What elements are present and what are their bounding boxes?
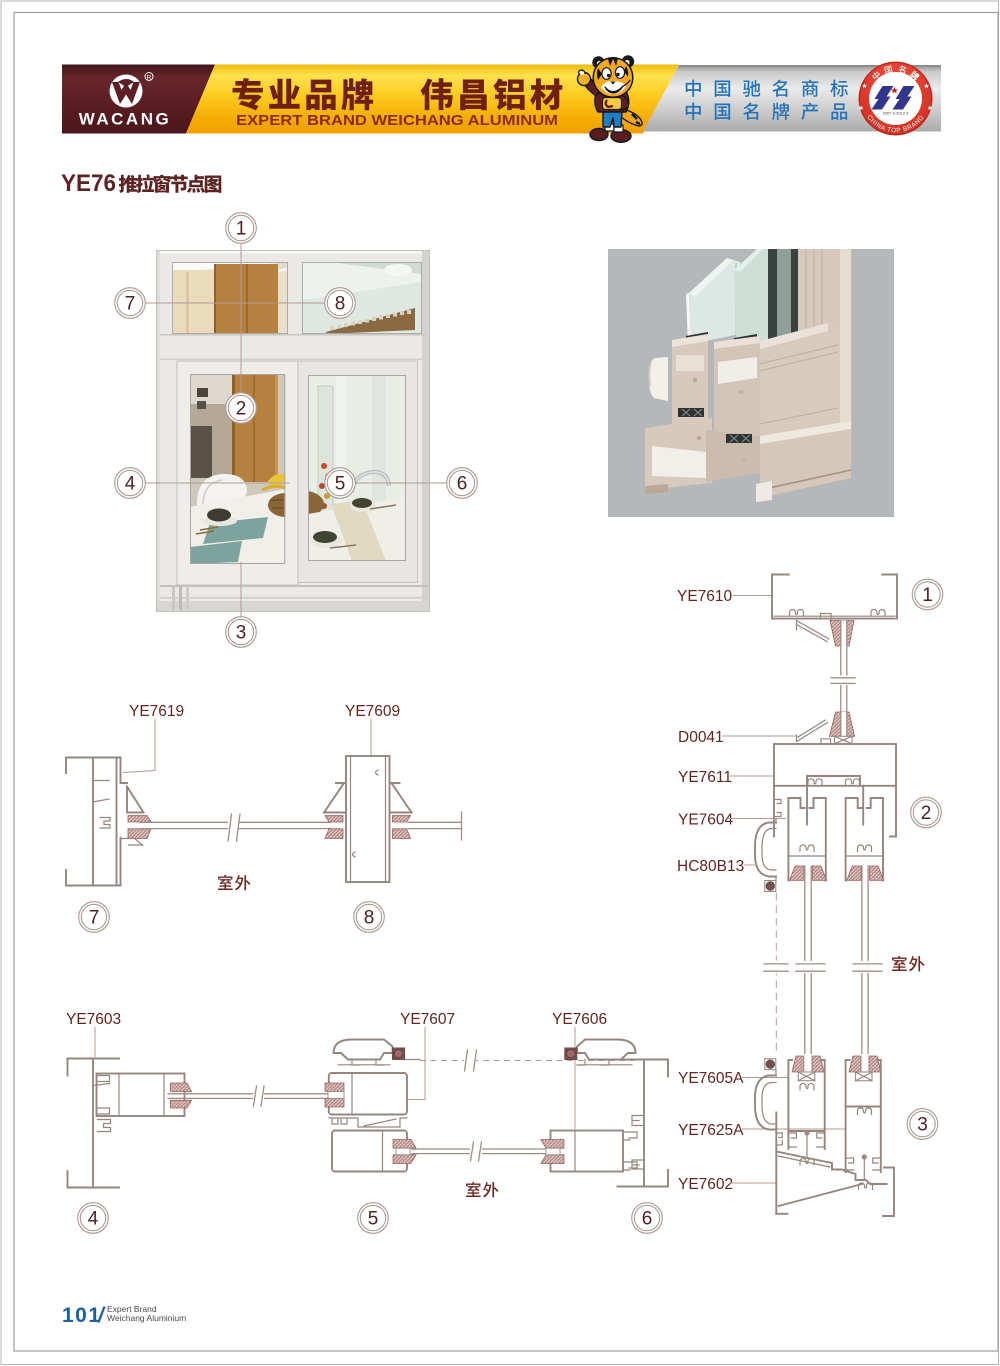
svg-text:4: 4 [88, 1209, 99, 1230]
svg-text:1: 1 [236, 219, 247, 240]
svg-text:Weichang Aluminium: Weichang Aluminium [107, 1313, 186, 1323]
svg-text:8: 8 [364, 908, 375, 929]
svg-text:YE7625A: YE7625A [678, 1122, 744, 1139]
svg-text:/: / [97, 1304, 106, 1327]
svg-text:YE7610: YE7610 [677, 588, 733, 605]
svg-text:YE7611: YE7611 [678, 769, 732, 786]
svg-text:3: 3 [236, 623, 247, 644]
svg-text:1: 1 [922, 585, 933, 606]
svg-text:2: 2 [921, 803, 932, 824]
svg-text:YE7609: YE7609 [345, 703, 400, 720]
svg-text:4: 4 [125, 474, 136, 495]
svg-text:8: 8 [335, 294, 346, 315]
svg-text:101: 101 [62, 1304, 102, 1327]
svg-text:YE7619: YE7619 [129, 703, 184, 720]
svg-text:YE7606: YE7606 [552, 1011, 607, 1028]
svg-text:7: 7 [89, 908, 100, 929]
svg-text:5: 5 [335, 474, 346, 495]
svg-text:YE7604: YE7604 [678, 812, 734, 829]
svg-text:6: 6 [457, 474, 468, 495]
svg-text:2: 2 [236, 399, 247, 420]
svg-text:R: R [147, 75, 152, 82]
svg-text:7: 7 [125, 294, 136, 315]
svg-text:YE7602: YE7602 [678, 1176, 733, 1193]
svg-text:YE76: YE76 [61, 170, 116, 197]
svg-text:5: 5 [368, 1209, 379, 1230]
svg-text:WACANG: WACANG [79, 110, 171, 129]
svg-text:YE7605A: YE7605A [678, 1070, 744, 1087]
svg-text:HC80B13: HC80B13 [677, 858, 744, 875]
svg-text:YE7603: YE7603 [66, 1011, 121, 1028]
svg-text:EXPERT BRAND WEICHANG ALUMINUM: EXPERT BRAND WEICHANG ALUMINUM [236, 112, 558, 129]
svg-text:6: 6 [642, 1209, 653, 1230]
svg-text:D0041: D0041 [678, 729, 724, 746]
svg-text:2007.9-2012.9: 2007.9-2012.9 [883, 111, 910, 116]
svg-text:YE7607: YE7607 [400, 1011, 455, 1028]
svg-text:3: 3 [917, 1115, 928, 1136]
